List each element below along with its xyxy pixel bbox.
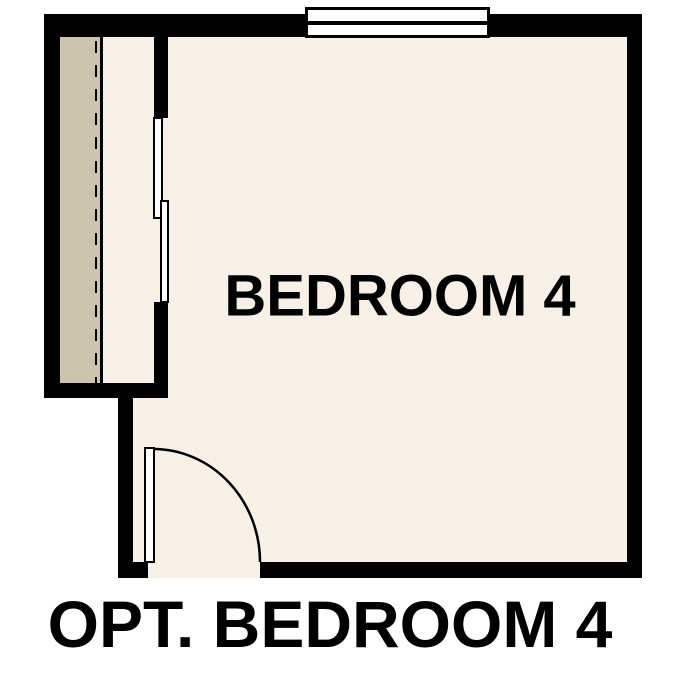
wall-closet-bottom: [44, 383, 168, 398]
closet-bypass-door-lower: [160, 200, 169, 303]
room-label: BEDROOM 4: [224, 263, 575, 330]
wall-closet-front-lower: [154, 302, 168, 398]
wall-entry-side: [118, 383, 133, 578]
wall-closet-front-upper: [154, 37, 168, 118]
closet-shelf-edge-line: [100, 37, 103, 383]
window: [305, 7, 490, 38]
wall-bottom-right: [260, 562, 642, 578]
wall-right: [627, 14, 642, 578]
closet-rod-dashed-line: [95, 41, 97, 383]
floor-plan: BEDROOM 4: [0, 0, 687, 687]
closet-floor: [103, 37, 155, 383]
entry-door-leaf: [144, 447, 155, 563]
wall-left: [44, 14, 60, 398]
floor-plan-page: BEDROOM 4 OPT. BEDROOM 4: [0, 0, 687, 687]
window-divider-line: [308, 21, 487, 25]
plan-caption: OPT. BEDROOM 4: [48, 586, 613, 662]
